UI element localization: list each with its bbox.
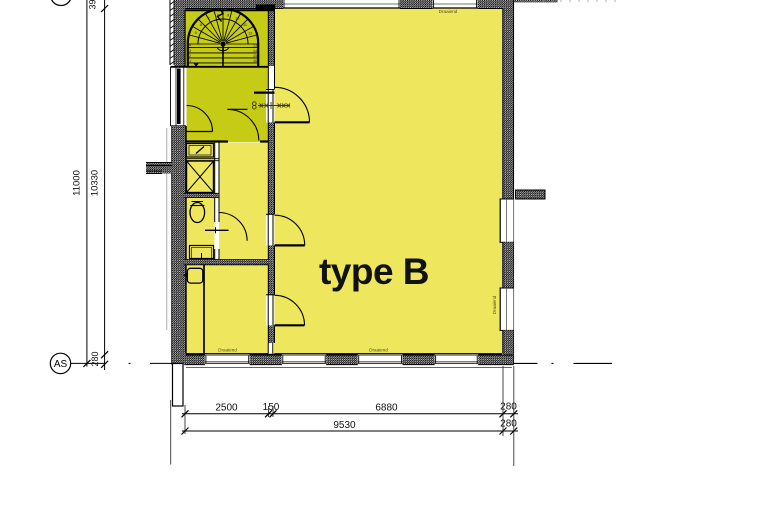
svg-text:11: 11 (243, 23, 247, 27)
svg-text:Draaiend: Draaiend (369, 348, 388, 353)
svg-text:3: 3 (189, 49, 191, 53)
svg-text:280: 280 (500, 401, 517, 412)
svg-text:15: 15 (253, 54, 257, 58)
svg-text:2500: 2500 (215, 403, 238, 414)
svg-text:11000: 11000 (72, 170, 83, 196)
svg-text:AS: AS (54, 359, 68, 370)
svg-text:16: 16 (253, 59, 257, 63)
svg-text:2: 2 (189, 54, 191, 58)
svg-text:4: 4 (189, 44, 191, 48)
svg-text:6: 6 (200, 23, 202, 27)
svg-text:280: 280 (90, 351, 100, 366)
svg-text:Draaiend: Draaiend (439, 9, 458, 14)
svg-text:7: 7 (208, 17, 210, 21)
svg-text:14: 14 (253, 49, 257, 53)
svg-text:390: 390 (88, 0, 98, 10)
svg-text:5: 5 (195, 31, 197, 35)
svg-text:8: 8 (217, 13, 219, 17)
svg-text:150: 150 (263, 402, 280, 413)
svg-text:13: 13 (253, 44, 257, 48)
svg-text:10: 10 (235, 17, 239, 21)
svg-text:9530: 9530 (333, 420, 356, 431)
svg-text:9: 9 (227, 13, 229, 17)
svg-text:6880: 6880 (375, 403, 398, 414)
svg-text:Draaiend: Draaiend (492, 295, 497, 314)
svg-text:12: 12 (248, 31, 252, 35)
svg-text:280: 280 (500, 419, 517, 430)
svg-text:10330: 10330 (90, 170, 101, 196)
svg-text:1: 1 (189, 59, 191, 63)
svg-text:type B: type B (319, 251, 429, 292)
svg-text:Draaiend: Draaiend (218, 348, 237, 353)
